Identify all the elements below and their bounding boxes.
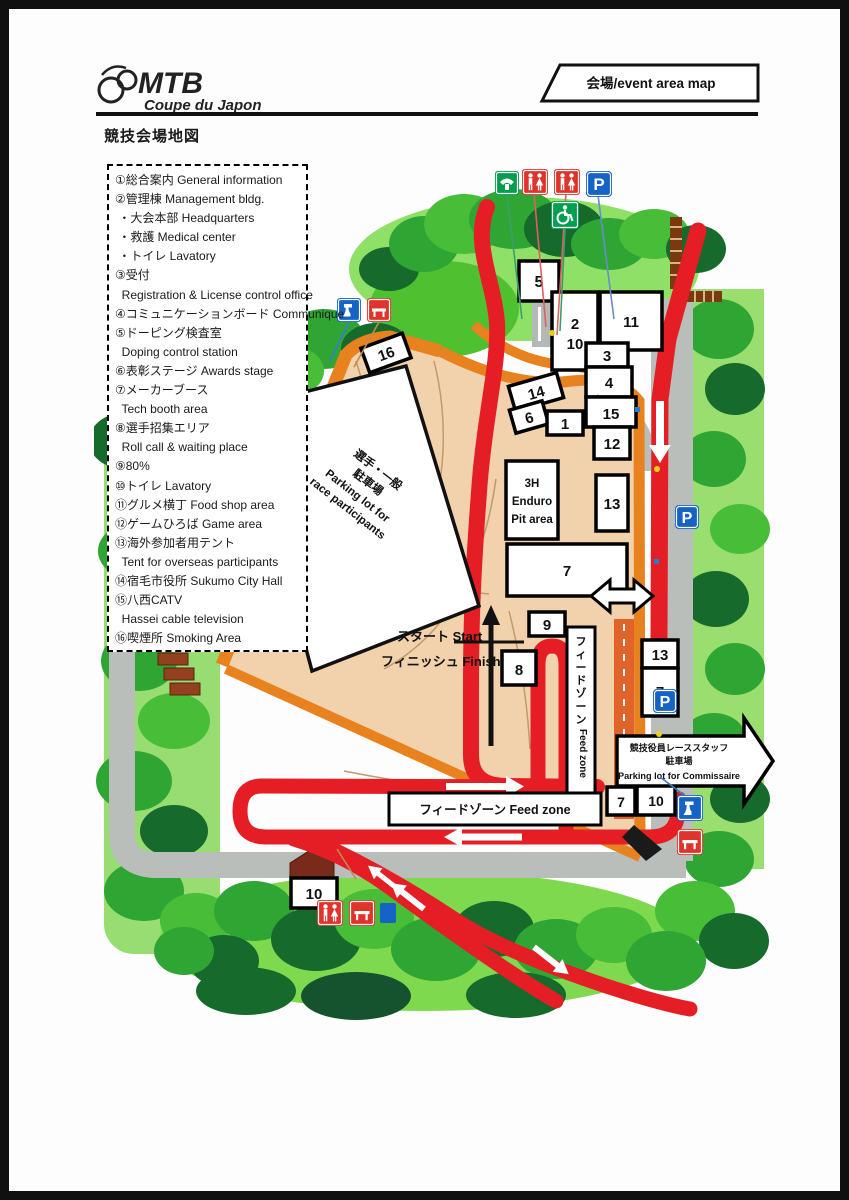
marker-13b: 13	[642, 640, 678, 668]
course-feed-a	[262, 786, 597, 787]
svg-text:3: 3	[603, 348, 611, 365]
svg-text:Enduro: Enduro	[512, 496, 552, 508]
svg-text:ー: ー	[576, 662, 587, 674]
bench-icon	[349, 900, 375, 926]
marker-15: 15	[586, 397, 636, 427]
marker-9: 9	[529, 612, 565, 636]
start-label: スタート Start	[397, 629, 483, 644]
legend-line: ⑫ゲームひろば Game area	[115, 515, 300, 534]
svg-text:Parking lot for Commissaire: Parking lot for Commissaire	[618, 771, 740, 781]
legend-line: ・トイレ Lavatory	[115, 247, 300, 266]
svg-text:ー: ー	[576, 701, 587, 713]
parking-icon: P	[653, 689, 677, 713]
legend-line: ⑬海外参加者用テント	[115, 534, 300, 553]
legend-line: ⑤ドーピング検査室	[115, 324, 300, 343]
svg-text:9: 9	[543, 617, 551, 634]
legend-box: ①総合案内 General information ②管理棟 Managemen…	[107, 164, 308, 652]
svg-text:1: 1	[561, 416, 569, 433]
marker-3: 3	[586, 343, 628, 367]
marker-10b: 10	[637, 785, 675, 815]
scanned-page: MTB Coupe du Japon 会場/event area map 競技会…	[0, 0, 849, 1200]
legend-line: Registration & License control office	[115, 286, 300, 305]
header-rule	[96, 112, 758, 116]
svg-text:ド: ド	[576, 674, 587, 687]
svg-text:P: P	[682, 510, 693, 527]
legend-line: Doping control station	[115, 343, 300, 362]
svg-text:フ: フ	[576, 636, 587, 648]
svg-text:10: 10	[648, 793, 664, 809]
restroom-icon	[317, 900, 343, 926]
telephone-icon	[495, 171, 519, 195]
svg-text:11: 11	[623, 314, 639, 331]
svg-text:P: P	[593, 175, 604, 194]
logo-subtext: Coupe du Japon	[144, 97, 262, 114]
svg-text:13: 13	[604, 496, 621, 513]
legend-line: ・大会本部 Headquarters	[115, 209, 300, 228]
svg-text:フィードゾーン Feed zone: フィードゾーン Feed zone	[419, 802, 570, 817]
svg-text:12: 12	[604, 436, 621, 453]
event-area-tab: 会場/event area map	[542, 65, 758, 101]
svg-text:競技役員レーススタッフ: 競技役員レーススタッフ	[630, 742, 729, 753]
svg-text:4: 4	[605, 375, 614, 392]
wheelchair-icon	[551, 201, 579, 229]
marker-12: 12	[594, 427, 630, 459]
restroom-icon	[554, 169, 580, 195]
svg-text:8: 8	[515, 662, 523, 679]
page-header: MTB Coupe du Japon 会場/event area map	[94, 57, 764, 123]
restroom-icon	[522, 169, 548, 195]
legend-line: ⑧選手招集エリア	[115, 419, 300, 438]
legend-line: ⑨80%	[115, 457, 300, 476]
svg-text:ィ: ィ	[576, 649, 587, 661]
event-area-tab-label: 会場/event area map	[586, 75, 715, 91]
legend-line: Tent for overseas participants	[115, 553, 300, 572]
logo-text: MTB	[138, 67, 203, 100]
svg-text:10: 10	[567, 336, 584, 353]
marker-7c: 7	[607, 787, 635, 815]
legend-line: ⑦メーカーブース	[115, 381, 300, 400]
mtb-logo: MTB Coupe du Japon	[99, 67, 262, 114]
marker-1: 1	[547, 411, 583, 435]
svg-text:Feed zone: Feed zone	[577, 729, 588, 778]
marker-13: 13	[596, 475, 628, 531]
svg-text:P: P	[660, 694, 671, 711]
feed-zone-horizontal-box: フィードゾーン Feed zone	[389, 793, 601, 825]
svg-text:15: 15	[603, 406, 620, 423]
sign-partial	[380, 903, 396, 923]
finish-label: フィニッシュ Finish	[381, 654, 501, 669]
marker-8: 8	[502, 651, 536, 685]
legend-line: ②管理棟 Management bldg.	[115, 190, 300, 209]
legend-line: ①総合案内 General information	[115, 171, 300, 190]
legend-line: ⑪グルメ横丁 Food shop area	[115, 496, 300, 515]
legend-line: ⑭宿毛市役所 Sukumo City Hall	[115, 572, 300, 591]
legend-line: ⑩トイレ Lavatory	[115, 477, 300, 496]
legend-line: ⑮八西CATV	[115, 591, 300, 610]
legend-line: Tech booth area	[115, 400, 300, 419]
svg-text:7: 7	[563, 563, 571, 580]
legend-line: ⑯喫煙所 Smoking Area	[115, 629, 300, 648]
svg-text:7: 7	[617, 794, 625, 810]
legend-line: ⑥表彰ステージ Awards stage	[115, 362, 300, 381]
page-title: 競技会場地図	[104, 125, 200, 146]
svg-text:ン: ン	[576, 714, 587, 726]
parking-icon: P	[675, 505, 699, 529]
svg-text:ゾ: ゾ	[576, 686, 587, 700]
svg-text:Pit area: Pit area	[511, 514, 553, 526]
marker-4: 4	[586, 367, 632, 397]
svg-text:駐車場: 駐車場	[665, 755, 692, 766]
bench-icon	[367, 298, 391, 322]
legend-line: ③受付	[115, 266, 300, 285]
feed-zone-vertical-box: フ ィ ー ド ゾ ー ン Feed zone	[567, 627, 595, 799]
svg-text:3H: 3H	[525, 478, 540, 490]
legend-line: ④コミュニケーションボード Communique	[115, 305, 300, 324]
parking-icon: P	[586, 171, 612, 197]
legend-line: ・救護 Medical center	[115, 228, 300, 247]
bench-icon	[677, 829, 703, 855]
drinking-water-icon	[677, 795, 703, 821]
svg-text:13: 13	[652, 647, 669, 664]
svg-text:2: 2	[571, 316, 579, 333]
enduro-pit-box: 3H Enduro Pit area	[506, 461, 558, 539]
legend-line: Hassei cable television	[115, 610, 300, 629]
legend-line: Roll call & waiting place	[115, 438, 300, 457]
